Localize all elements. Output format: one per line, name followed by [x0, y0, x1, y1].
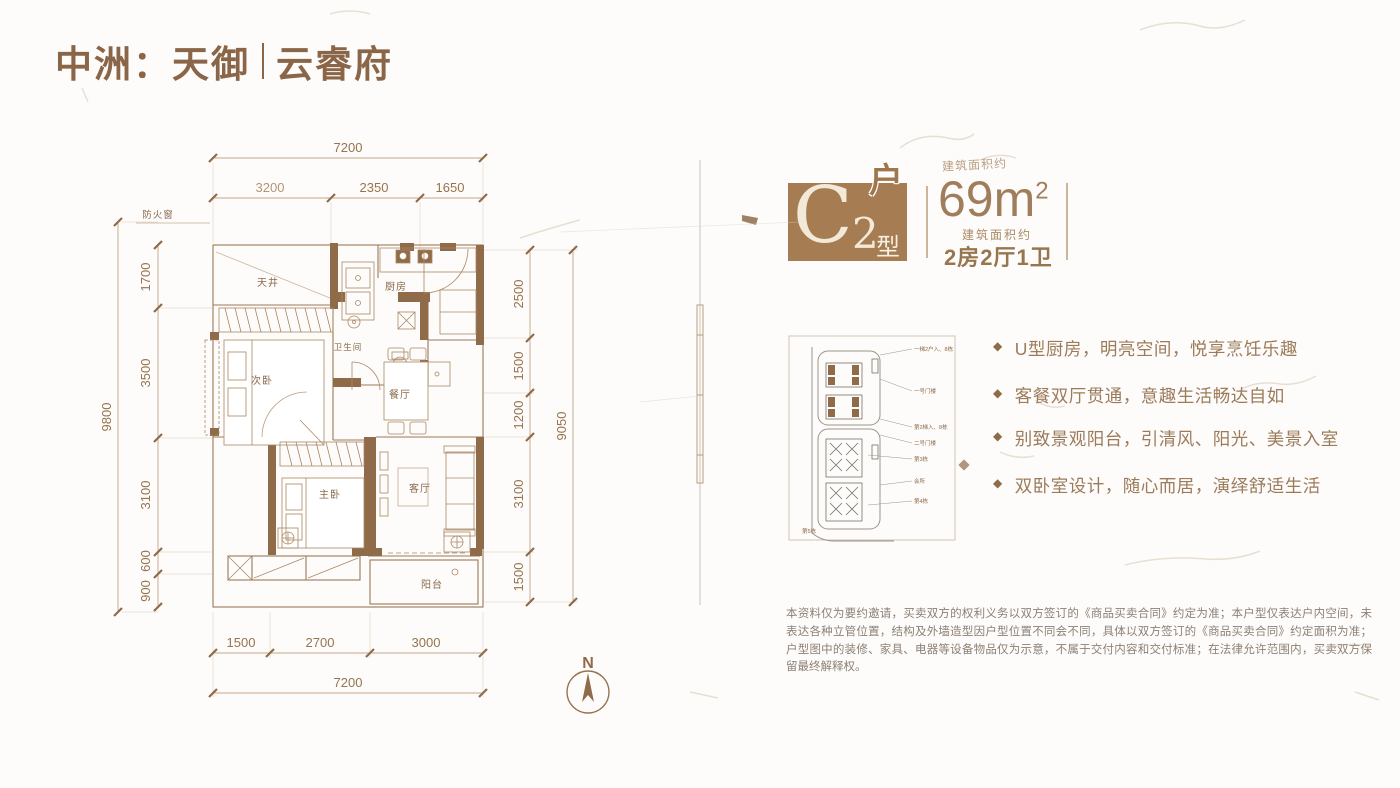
brand-logo-right: 云睿府 [276, 34, 393, 88]
svg-text:第4栋: 第4栋 [914, 497, 929, 505]
feature-text: 别致景观阳台，引清风、阳光、美景入室 [1015, 426, 1339, 451]
north-compass-icon: N [567, 655, 609, 713]
diamond-bullet-icon: ◆ [993, 386, 1003, 400]
dining-chair [388, 422, 404, 434]
bath-sink [348, 316, 360, 328]
room-kitchen: 厨房 [385, 280, 407, 293]
dim-top-total: 7200 [334, 140, 363, 155]
tv-console [380, 452, 388, 470]
floor-plan: 7200 3200 2350 1650 9800 1700 3500 3100 … [95, 125, 625, 735]
svg-text:第2梯入、8栋: 第2梯入、8栋 [914, 423, 948, 431]
dining-chair [410, 348, 426, 360]
dim-right-seg1: 2500 [511, 280, 526, 309]
room-living: 客厅 [409, 482, 431, 495]
noise-diamond [958, 459, 969, 470]
dim-top-seg2: 2350 [360, 180, 389, 195]
svg-text:会所: 会所 [914, 477, 926, 485]
dim-bottom-seg2: 2700 [306, 635, 335, 650]
svg-text:二号门楼: 二号门楼 [914, 439, 937, 447]
room-bathroom: 卫生间 [334, 342, 363, 352]
dimension-ticks [114, 154, 577, 697]
feature-text: U型厨房，明亮空间，悦享烹饪乐趣 [1015, 336, 1298, 361]
dim-right-total: 9050 [554, 412, 569, 441]
badge-number: 2 [852, 209, 879, 258]
svg-text:第5栋: 第5栋 [802, 527, 817, 535]
dim-left-seg5: 900 [138, 580, 153, 602]
bay-window [205, 340, 219, 435]
dim-left-total: 9800 [99, 403, 114, 432]
feature-item-2: ◆ 客餐双厅贯通，意趣生活畅达自如 [993, 383, 1285, 408]
dim-right-seg2: 1500 [511, 352, 526, 381]
room-bedroom2: 次卧 [251, 374, 273, 387]
dim-right-seg5: 1500 [511, 563, 526, 592]
diamond-bullet-icon: ◆ [993, 339, 1003, 353]
badge-suffix-top: 户 [869, 153, 903, 202]
room-layout-summary: 2房2厅1卫 [944, 240, 1053, 272]
feature-text: 客餐双厅贯通，意趣生活畅达自如 [1015, 383, 1285, 408]
noise-artifact [742, 215, 758, 225]
diamond-bullet-icon: ◆ [993, 476, 1003, 490]
badge-divider-2 [1066, 183, 1068, 260]
svg-text:一梯2户入、8栋: 一梯2户入、8栋 [914, 345, 954, 353]
brand-logo-left: 中洲：天御 [55, 34, 250, 88]
fire-window-label: 防火窗 [142, 209, 174, 221]
site-key-plan: 一梯2户入、8栋 一号门楼 第2梯入、8栋 二号门楼 第3栋 会所 第4栋 第5… [788, 335, 960, 543]
site-labels: 一梯2户入、8栋 一号门楼 第2梯入、8栋 二号门楼 第3栋 会所 第4栋 第5… [802, 345, 954, 535]
dim-left-seg1: 1700 [138, 263, 153, 292]
dining-chair [410, 422, 426, 434]
dim-top-seg3: 1650 [436, 180, 465, 195]
dim-bottom-seg3: 3000 [412, 635, 441, 650]
lightwell-diagonal [216, 252, 330, 298]
drain [452, 569, 458, 575]
compass-n-label: N [582, 655, 594, 672]
feature-item-4: ◆ 双卧室设计，随心而居，演绎舒适生活 [993, 473, 1321, 498]
diamond-bullet-icon: ◆ [993, 429, 1003, 443]
dim-top-seg1: 3200 [256, 180, 285, 195]
toilet-tank [392, 352, 408, 359]
feature-item-1: ◆ U型厨房，明亮空间，悦享烹饪乐趣 [993, 336, 1298, 361]
dim-left-seg3: 3100 [138, 481, 153, 510]
badge-letter: C [793, 171, 853, 261]
room-dining: 餐厅 [389, 388, 411, 401]
dim-bottom-seg1: 1500 [227, 635, 256, 650]
dimension-lines [118, 158, 578, 697]
room-bedroom1: 主卧 [319, 488, 341, 501]
dim-right-seg4: 3100 [511, 480, 526, 509]
dim-bottom-total: 7200 [334, 675, 363, 690]
brand-logo: 中洲：天御 云睿府 [55, 34, 393, 88]
feature-text: 双卧室设计，随心而居，演绎舒适生活 [1015, 473, 1321, 498]
page-divider [690, 150, 760, 620]
sink-unit [342, 262, 374, 320]
svg-text:第3栋: 第3栋 [914, 455, 929, 463]
badge-divider-1 [926, 186, 928, 258]
dim-left-seg4: 600 [138, 550, 153, 572]
feature-item-3: ◆ 别致景观阳台，引清风、阳光、美景入室 [993, 426, 1339, 451]
site-units [826, 359, 878, 521]
area-value: 69m2 [938, 170, 1049, 228]
disclaimer-text: 本资料仅为要约邀请，买卖双方的权利义务以双方签订的《商品买卖合同》约定为准；本户… [786, 606, 1372, 677]
room-balcony: 阳台 [421, 578, 443, 591]
dim-left-seg2: 3500 [138, 359, 153, 388]
sofa [446, 452, 474, 530]
badge-suffix-bottom: 型 [876, 227, 900, 262]
svg-text:一号门楼: 一号门楼 [914, 387, 937, 395]
room-light-well: 天井 [257, 276, 279, 289]
logo-divider [262, 43, 264, 79]
dim-right-seg3: 1200 [511, 401, 526, 430]
